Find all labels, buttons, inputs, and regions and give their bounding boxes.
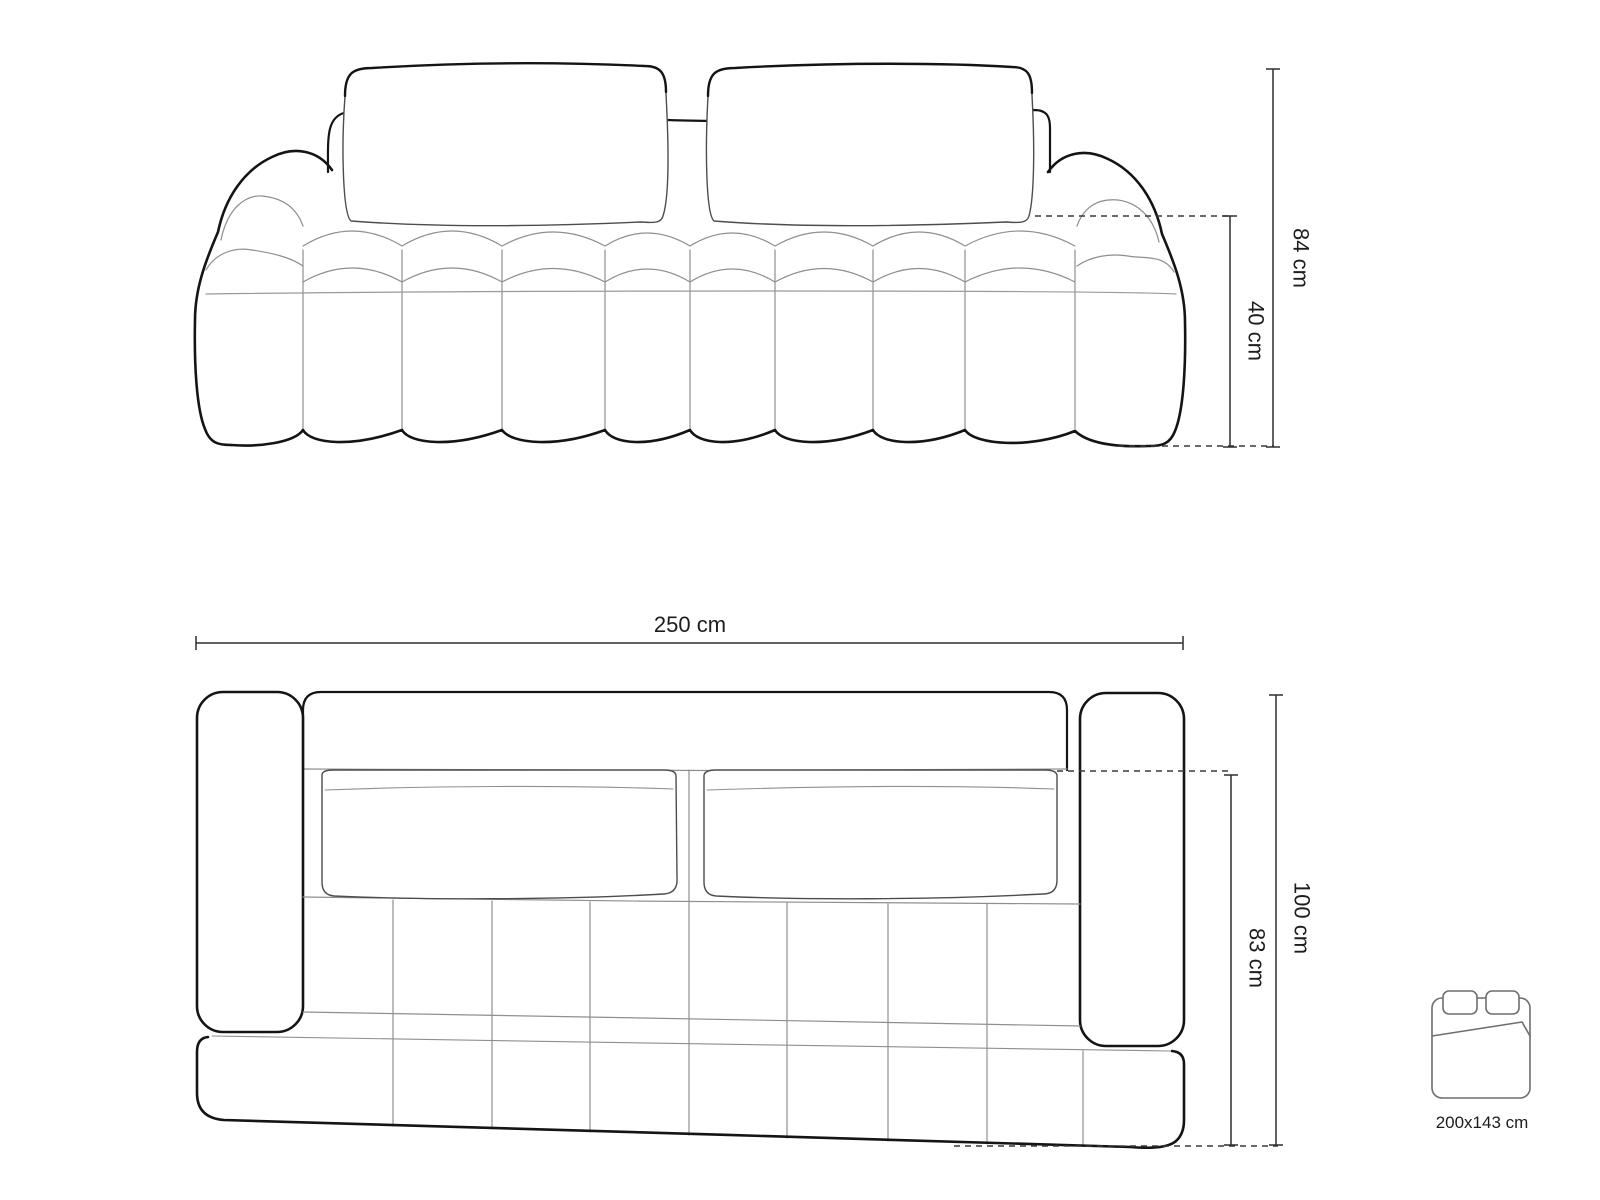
bed-icon-pillow-left xyxy=(1443,991,1477,1014)
depth-dimension-label: 100 cm xyxy=(1289,882,1314,954)
sofa-dimension-diagram: 250 cm 84 cm 40 cm 83 cm 100 cm 200x143 … xyxy=(0,0,1600,1200)
plan-left-armrest xyxy=(197,692,303,1032)
bed-icon-pillow-right xyxy=(1486,991,1519,1014)
front-right-pillow xyxy=(706,64,1033,226)
seat-depth-dimension-label: 83 cm xyxy=(1244,928,1269,988)
diagram-svg: 250 cm 84 cm 40 cm 83 cm 100 cm 200x143 … xyxy=(0,0,1600,1200)
sleeping-function-icon xyxy=(1432,991,1530,1098)
height-dimension-label: 84 cm xyxy=(1288,228,1313,288)
plan-left-cushion xyxy=(322,770,677,899)
plan-right-armrest xyxy=(1080,693,1184,1046)
sleeping-size-label: 200x143 cm xyxy=(1436,1113,1529,1132)
plan-right-cushion xyxy=(704,770,1057,899)
front-left-pillow xyxy=(343,63,668,225)
width-dimension-label: 250 cm xyxy=(654,612,726,637)
seat-height-dimension-label: 40 cm xyxy=(1243,301,1268,361)
